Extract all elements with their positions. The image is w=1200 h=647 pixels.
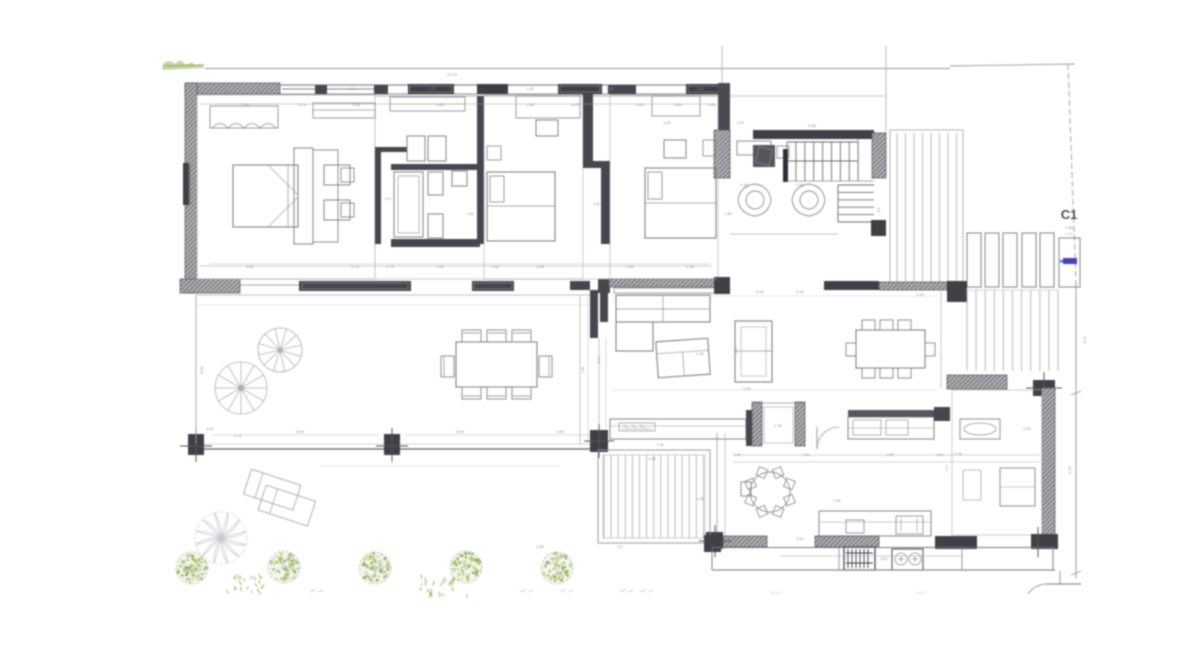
- svg-text:1.90: 1.90: [352, 102, 361, 107]
- svg-text:1.50: 1.50: [607, 87, 614, 91]
- svg-text:9.11 4: 9.11 4: [771, 590, 783, 595]
- svg-text:6.40: 6.40: [200, 366, 204, 373]
- svg-text:2.45: 2.45: [916, 293, 923, 297]
- svg-text:2.55: 2.55: [626, 264, 635, 269]
- svg-text:5.08: 5.08: [808, 123, 817, 128]
- svg-text:4.35: 4.35: [571, 102, 580, 107]
- svg-text:2.00: 2.00: [1023, 427, 1030, 431]
- svg-text:2.98: 2.98: [834, 499, 841, 503]
- svg-text:1.28: 1.28: [697, 87, 704, 91]
- svg-text:1.48: 1.48: [725, 212, 732, 216]
- svg-text:0.60: 0.60: [881, 557, 888, 561]
- svg-text:0.46: 0.46: [756, 290, 763, 294]
- svg-text:1.30: 1.30: [436, 264, 445, 269]
- svg-text:5.46: 5.46: [796, 290, 803, 294]
- svg-text:1.48: 1.48: [737, 121, 744, 125]
- svg-text:1.35: 1.35: [774, 424, 781, 428]
- svg-text:1.28: 1.28: [686, 264, 695, 269]
- svg-text:1.20: 1.20: [1067, 465, 1072, 474]
- svg-text:2.75: 2.75: [386, 264, 395, 269]
- svg-text:2.38: 2.38: [255, 87, 262, 91]
- svg-text:12.70: 12.70: [447, 72, 458, 77]
- svg-text:0.95: 0.95: [1065, 226, 1072, 230]
- svg-text:0.20: 0.20: [206, 427, 213, 431]
- svg-text:1.30: 1.30: [747, 537, 754, 541]
- svg-text:7.36: 7.36: [657, 443, 664, 447]
- svg-text:C1: C1: [1061, 207, 1078, 222]
- svg-text:3.08: 3.08: [664, 121, 671, 125]
- svg-text:1.46: 1.46: [734, 453, 741, 457]
- svg-text:5.50: 5.50: [743, 387, 750, 391]
- svg-text:2.98: 2.98: [537, 545, 544, 549]
- svg-text:0.76: 0.76: [298, 102, 307, 107]
- svg-text:4.35: 4.35: [674, 102, 683, 107]
- svg-text:1.35: 1.35: [740, 182, 749, 187]
- svg-text:1.48: 1.48: [467, 212, 474, 216]
- svg-text:0.35: 0.35: [708, 102, 717, 107]
- svg-text:0.60: 0.60: [937, 453, 944, 457]
- svg-text:3.15: 3.15: [1083, 337, 1087, 344]
- svg-text:0.70: 0.70: [234, 434, 241, 438]
- svg-text:1.63: 1.63: [648, 457, 655, 461]
- svg-text:5.05: 5.05: [556, 429, 565, 434]
- svg-text:1.50: 1.50: [491, 264, 500, 269]
- svg-text:1.90: 1.90: [349, 87, 356, 91]
- svg-text:2.98: 2.98: [887, 453, 894, 457]
- svg-text:2.76: 2.76: [954, 452, 961, 456]
- svg-text:4.5: 4.5: [877, 208, 881, 213]
- svg-text:1.46: 1.46: [581, 367, 585, 374]
- svg-text:1.30: 1.30: [526, 102, 535, 107]
- svg-text:6.46: 6.46: [597, 357, 601, 364]
- svg-text:1.44: 1.44: [796, 182, 805, 187]
- svg-text:1.30: 1.30: [803, 453, 810, 457]
- svg-text:0.75: 0.75: [351, 264, 360, 269]
- svg-text:2.38: 2.38: [241, 102, 250, 107]
- svg-text:1.35: 1.35: [696, 352, 703, 356]
- svg-text:1.80: 1.80: [436, 102, 445, 107]
- svg-text:4.27: 4.27: [385, 197, 392, 201]
- svg-text:2.98: 2.98: [536, 264, 545, 269]
- svg-text:3.6 4: 3.6 4: [917, 590, 927, 595]
- svg-text:5.80: 5.80: [246, 264, 255, 269]
- svg-text:5.08: 5.08: [456, 429, 465, 434]
- svg-text:1.46: 1.46: [593, 202, 600, 206]
- svg-text:1.27: 1.27: [945, 465, 949, 472]
- svg-text:0.90: 0.90: [636, 102, 645, 107]
- svg-text:5.46: 5.46: [797, 537, 804, 541]
- svg-text:1.47: 1.47: [429, 87, 436, 91]
- svg-text:5.08: 5.08: [296, 429, 305, 434]
- svg-text:1.35: 1.35: [697, 497, 704, 501]
- svg-text:1.30: 1.30: [527, 87, 534, 91]
- svg-text:2.10: 2.10: [1065, 232, 1072, 236]
- svg-text:8.3: 8.3: [618, 545, 623, 549]
- svg-text:8.46: 8.46: [734, 347, 738, 354]
